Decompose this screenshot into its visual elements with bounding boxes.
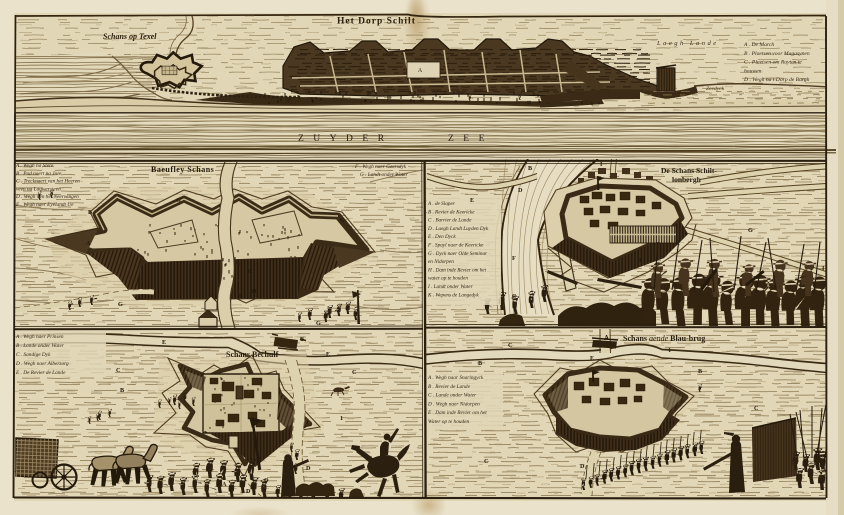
svg-text:E: E (326, 351, 330, 358)
svg-text:1: 1 (340, 415, 343, 422)
svg-text:Water op te houden: Water op te houden (428, 419, 469, 425)
svg-text:C: C (508, 342, 512, 349)
svg-text:en Nidorpen: en Nidorpen (428, 259, 454, 265)
svg-text:A: A (418, 68, 423, 74)
svg-text:A . Wegh naer Prinsen: A . Wegh naer Prinsen (15, 334, 64, 340)
svg-text:D . Wegh naer Nidorpen: D . Wegh naer Nidorpen (427, 401, 480, 407)
svg-text:D . Wegh na t Dorp de Burgh: D . Wegh na t Dorp de Burgh (743, 77, 810, 83)
svg-text:F . Spuyl naer de Keericke: F . Spuyl naer de Keericke (427, 243, 484, 249)
svg-text:B: B (528, 165, 532, 172)
svg-text:C: C (512, 293, 516, 300)
svg-text:G . Dyck naer Olde Seminar: G . Dyck naer Olde Seminar (428, 251, 488, 257)
svg-text:C . Lande onder Water: C . Lande onder Water (428, 393, 477, 399)
svg-text:lonbergh: lonbergh (672, 175, 702, 184)
svg-text:F: F (512, 255, 516, 262)
svg-text:E . De Revier de Lande: E . De Revier de Lande (15, 370, 66, 376)
svg-text:D: D (306, 465, 311, 472)
svg-text:A: A (86, 240, 91, 247)
svg-text:C: C (484, 458, 488, 465)
svg-text:A: A (604, 334, 609, 342)
svg-text:C: C (754, 405, 758, 412)
svg-text:B: B (698, 368, 702, 375)
svg-text:1: 1 (668, 347, 671, 354)
svg-text:I . Landt onder Water: I . Landt onder Water (427, 284, 474, 290)
svg-text:B: B (120, 387, 124, 394)
svg-text:G: G (748, 227, 753, 234)
svg-text:A: A (222, 481, 227, 488)
svg-text:houwen: houwen (744, 68, 762, 74)
svg-text:E . Den Dyck: E . Den Dyck (427, 234, 456, 240)
svg-text:E . Wegh naer Eyelandt Ue: E . Wegh naer Eyelandt Ue (15, 202, 74, 208)
svg-text:C: C (116, 367, 120, 374)
svg-text:water op te houden: water op te houden (428, 276, 468, 282)
svg-text:B: B (300, 336, 304, 343)
svg-text:G: G (118, 301, 123, 308)
svg-text:C: C (248, 268, 252, 275)
svg-text:Laegh Lande: Laegh Lande (656, 40, 719, 47)
svg-text:D . Wegh van het Neervengen: D . Wegh van het Neervengen (15, 194, 79, 200)
svg-text:D: D (252, 288, 257, 295)
svg-text:ZEE: ZEE (448, 134, 494, 144)
svg-text:A . Wegh naar Snaringyck: A . Wegh naar Snaringyck (427, 375, 484, 381)
svg-text:B: B (88, 209, 92, 216)
svg-text:B . Lande onder Water: B . Lande onder Water (16, 343, 65, 349)
svg-text:Baeufley Schans: Baeufley Schans (151, 165, 214, 174)
svg-text:B . Pad naert na Jure: B . Pad naert na Jure (16, 171, 62, 177)
svg-text:Zeedyck: Zeedyck (706, 86, 725, 92)
svg-text:B . Revier de Keericke: B . Revier de Keericke (428, 209, 475, 215)
svg-text:E: E (590, 355, 594, 362)
svg-text:B: B (478, 360, 482, 367)
svg-text:F . Wegh naer Geersdyk: F . Wegh naer Geersdyk (354, 164, 407, 170)
svg-text:B . Plaetsen voor Magasynen: B . Plaetsen voor Magasynen (744, 51, 810, 57)
svg-text:D: D (246, 488, 251, 495)
svg-text:D: D (580, 463, 585, 470)
svg-text:veen na Lauwersteen: veen na Lauwersteen (16, 186, 61, 192)
svg-text:ZUYDER: ZUYDER (298, 134, 394, 144)
svg-text:D: D (518, 187, 523, 194)
svg-text:De Schans Schilt-: De Schans Schilt- (661, 166, 717, 175)
svg-text:C: C (264, 477, 268, 484)
svg-text:K . Wepens de Langedyk: K . Wepens de Langedyk (427, 292, 479, 298)
svg-text:B . Revier de Lande: B . Revier de Lande (428, 384, 471, 390)
svg-text:C . Trecknaert van het Heeren: C . Trecknaert van het Heeren (16, 179, 80, 185)
svg-text:C . Plaetsen om Ruyten te: C . Plaetsen om Ruyten te (744, 60, 802, 66)
svg-text:C: C (352, 369, 356, 376)
svg-text:H . Dam inde Revier om het: H . Dam inde Revier om het (427, 267, 487, 273)
svg-text:G: G (176, 197, 181, 204)
svg-text:Het Dorp Schilt: Het Dorp Schilt (337, 17, 416, 27)
svg-text:E: E (470, 197, 474, 204)
svg-text:Schans aende Blau-brug: Schans aende Blau-brug (623, 334, 705, 343)
svg-text:C . Barrier de Lande: C . Barrier de Lande (428, 218, 472, 224)
svg-text:G . Landt onder Water: G . Landt onder Water (360, 172, 409, 178)
svg-text:D . Wegh naer Alberzorg: D . Wegh naer Alberzorg (15, 361, 69, 367)
svg-text:A . De March: A . De March (743, 42, 774, 48)
svg-text:C . Sandige Dyk: C . Sandige Dyk (16, 352, 51, 358)
svg-text:Schans op Texel: Schans op Texel (103, 32, 157, 41)
svg-text:E . Dam inde Revier om het: E . Dam inde Revier om het (427, 410, 487, 416)
svg-text:D . Laegh Landt Luyden Dyk: D . Laegh Landt Luyden Dyk (427, 226, 489, 232)
svg-text:Schans Bechulf: Schans Bechulf (226, 350, 279, 359)
svg-text:E: E (162, 339, 166, 346)
svg-text:A . de Slaper: A . de Slaper (427, 201, 456, 207)
svg-text:G: G (340, 217, 345, 224)
